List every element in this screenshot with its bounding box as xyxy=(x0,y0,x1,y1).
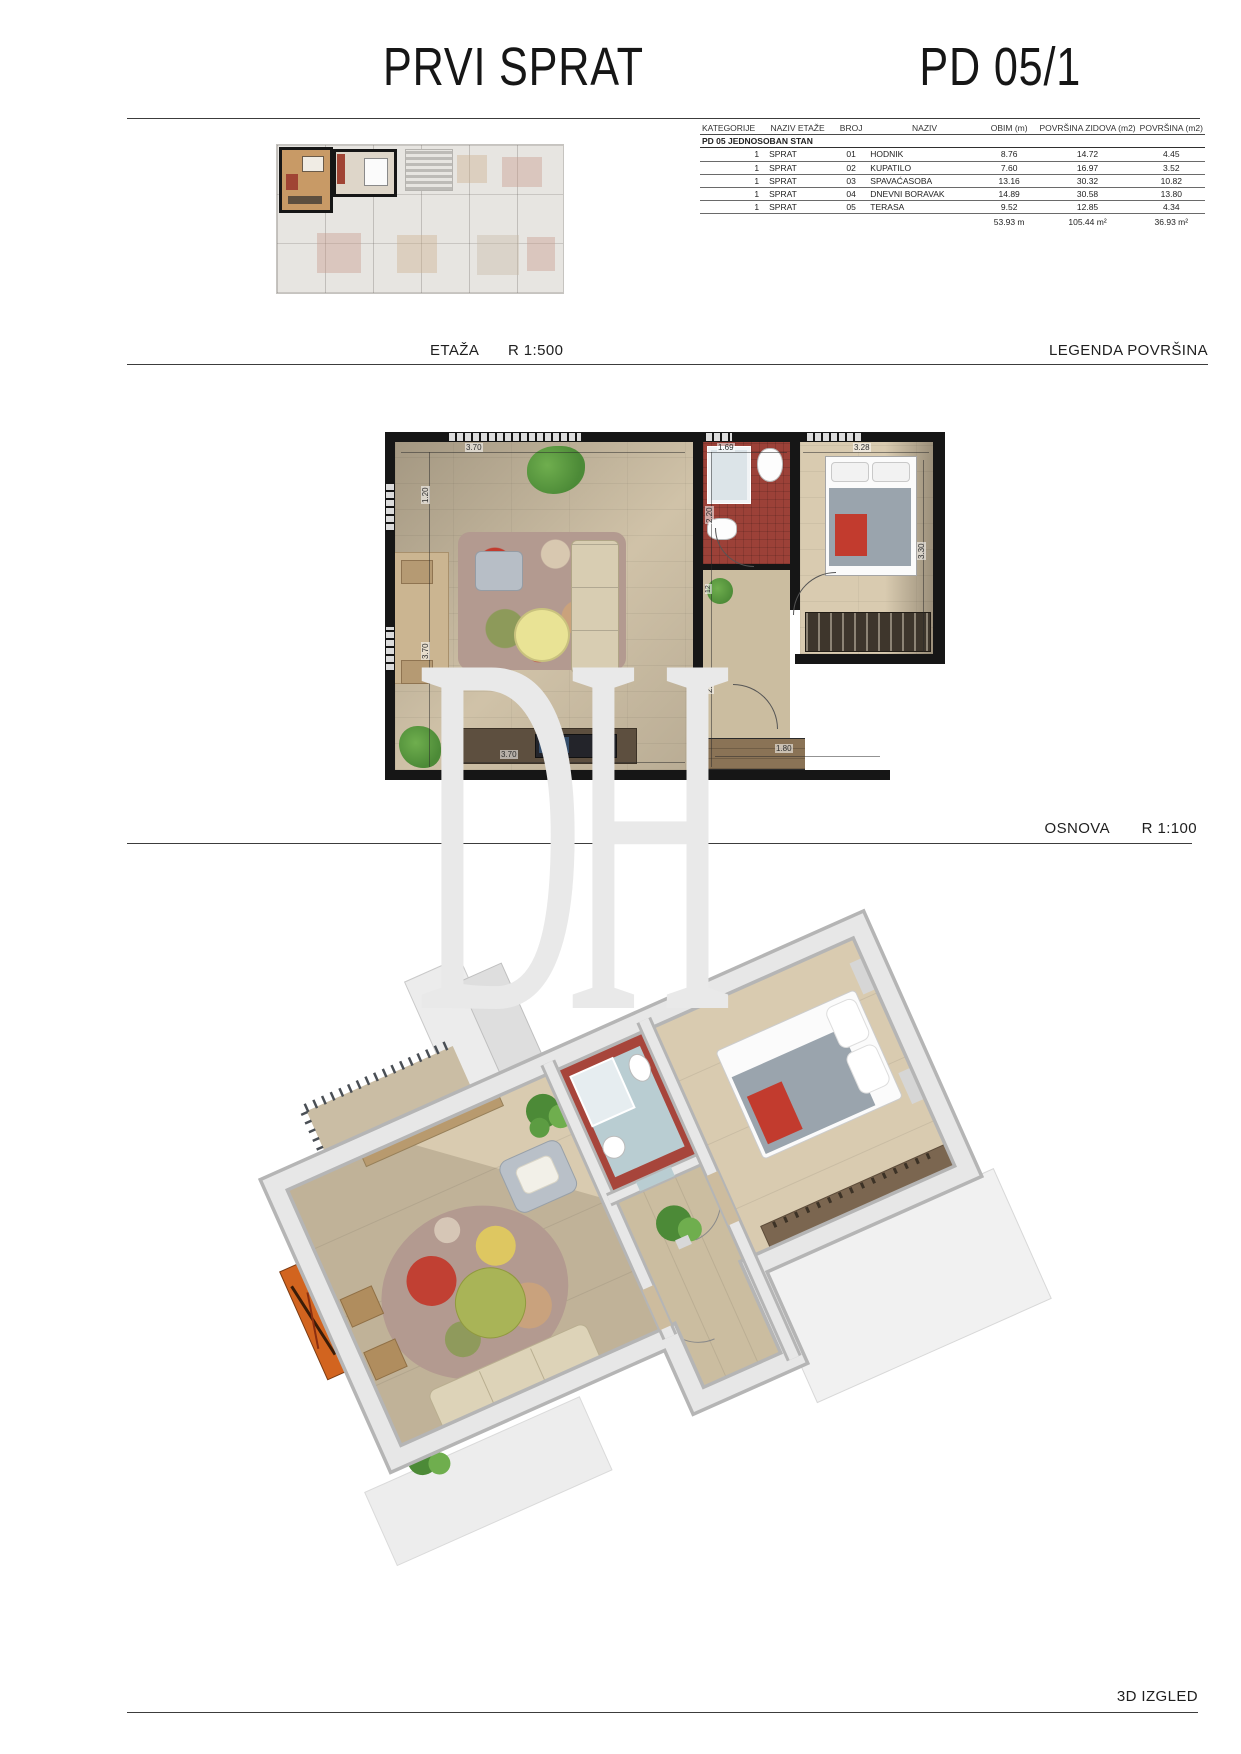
section-scale-osnova: R 1:100 xyxy=(1142,820,1197,837)
floor-plan: 3.70 1.69 3.28 1.20 3.70 2.20 12 2.78 3.… xyxy=(385,432,945,782)
cell-etaza: SPRAT xyxy=(761,201,834,214)
sofa xyxy=(571,540,619,674)
dim-label: 2.20 xyxy=(705,506,714,524)
cell-obim: 9.52 xyxy=(981,201,1038,214)
section-scale-etaza: R 1:500 xyxy=(508,342,563,359)
cell-povrsina: 4.34 xyxy=(1138,201,1205,214)
cell-obim: 13.16 xyxy=(981,174,1038,187)
legend-table: KATEGORIJE NAZIV ETAŽE BROJ NAZIV OBIM (… xyxy=(700,122,1205,229)
window-bedroom xyxy=(805,433,863,441)
col-header: NAZIV ETAŽE xyxy=(761,122,834,135)
col-header: NAZIV xyxy=(868,122,981,135)
cell-broj: 01 xyxy=(834,148,868,161)
dim-label: 2.78 xyxy=(705,676,714,694)
wall-bath-bedroom xyxy=(790,432,800,564)
cell-etaza: SPRAT xyxy=(761,161,834,174)
section-rule-etaza xyxy=(127,364,1208,365)
section-label-3d: 3D IZGLED xyxy=(1117,1688,1198,1705)
cell-povrsina: 4.45 xyxy=(1138,148,1205,161)
cell-etaza: SPRAT xyxy=(761,174,834,187)
window-bath xyxy=(704,433,732,441)
cell-zidovi: 14.72 xyxy=(1037,148,1137,161)
dim-label: 1.20 xyxy=(421,486,430,504)
cell-zidovi: 16.97 xyxy=(1037,161,1137,174)
stairwell xyxy=(405,149,453,191)
bed-pillow xyxy=(872,462,910,482)
total-povrsina: 36.93 m² xyxy=(1138,214,1205,229)
cell-naziv: DNEVNI BORAVAK xyxy=(868,187,981,200)
cell-broj: 03 xyxy=(834,174,868,187)
armchair xyxy=(475,551,523,591)
cell-obim: 14.89 xyxy=(981,187,1038,200)
cell-etaza: SPRAT xyxy=(761,187,834,200)
sheet: PRVI SPRAT PD 05/1 KATEGORIJE NAZIV ETAŽ… xyxy=(0,0,1241,1754)
table-row: 1 SPRAT 05 TERASA 9.52 12.85 4.34 xyxy=(700,201,1205,214)
cell-kategorije: 1 xyxy=(700,148,761,161)
col-header: KATEGORIJE xyxy=(700,122,761,135)
table-row: 1 SPRAT 02 KUPATILO 7.60 16.97 3.52 xyxy=(700,161,1205,174)
coffee-table xyxy=(514,608,570,662)
highlighted-unit-bedroom xyxy=(333,149,397,197)
section-label-etaza: ETAŽA xyxy=(430,342,479,359)
wall-living-divider xyxy=(693,432,703,780)
wall-right xyxy=(933,432,945,664)
cell-naziv: TERASA xyxy=(868,201,981,214)
cell-broj: 04 xyxy=(834,187,868,200)
total-obim: 53.93 m xyxy=(981,214,1038,229)
cell-povrsina: 13.80 xyxy=(1138,187,1205,200)
cell-etaza: SPRAT xyxy=(761,148,834,161)
cell-obim: 8.76 xyxy=(981,148,1038,161)
section-label-legenda: LEGENDA POVRŠINA xyxy=(1049,342,1208,359)
col-header: POVRŠINA ZIDOVA (m2) xyxy=(1037,122,1137,135)
header-rule xyxy=(127,118,1200,119)
wall-bedroom-bottom xyxy=(795,654,945,664)
dim-label: 3.30 xyxy=(917,542,926,560)
dim-label: 1.80 xyxy=(775,744,793,753)
table-row: 1 SPRAT 01 HODNIK 8.76 14.72 4.45 xyxy=(700,148,1205,161)
cell-kategorije: 1 xyxy=(700,201,761,214)
col-header: OBIM (m) xyxy=(981,122,1038,135)
wall-bottom xyxy=(385,770,890,780)
dim-label: 1.69 xyxy=(717,443,735,452)
dim-label: 3.70 xyxy=(465,443,483,452)
toilet xyxy=(757,448,783,482)
cell-zidovi: 12.85 xyxy=(1037,201,1137,214)
cell-naziv: HODNIK xyxy=(868,148,981,161)
dim-label: 3.70 xyxy=(421,642,430,660)
highlighted-unit-living xyxy=(279,147,333,213)
door-balcony-left xyxy=(386,627,394,672)
exterior-cutout xyxy=(805,668,945,770)
tv-glow xyxy=(539,737,569,753)
cell-broj: 05 xyxy=(834,201,868,214)
cell-naziv: SPAVAĆASOBA xyxy=(868,174,981,187)
cell-povrsina: 3.52 xyxy=(1138,161,1205,174)
cell-kategorije: 1 xyxy=(700,161,761,174)
table-totals-row: 53.93 m 105.44 m² 36.93 m² xyxy=(700,214,1205,229)
section-rule-osnova xyxy=(127,843,1192,844)
cell-zidovi: 30.58 xyxy=(1037,187,1137,200)
cell-naziv: KUPATILO xyxy=(868,161,981,174)
window-living-left xyxy=(386,482,394,532)
section-rule-3d xyxy=(127,1712,1198,1713)
shower xyxy=(707,446,751,504)
cell-broj: 02 xyxy=(834,161,868,174)
cell-zidovi: 30.32 xyxy=(1037,174,1137,187)
total-zidovi: 105.44 m² xyxy=(1037,214,1137,229)
table-row: 1 SPRAT 03 SPAVAĆASOBA 13.16 30.32 10.82 xyxy=(700,174,1205,187)
wardrobe xyxy=(805,612,931,652)
dim-label: 3.28 xyxy=(853,443,871,452)
col-header: POVRŠINA (m2) xyxy=(1138,122,1205,135)
bed-pillow xyxy=(831,462,869,482)
etaza-overview xyxy=(250,130,570,300)
window-living xyxy=(447,433,581,441)
dim-label: 3.70 xyxy=(500,750,518,759)
cell-obim: 7.60 xyxy=(981,161,1038,174)
sheet-code: PD 05/1 xyxy=(919,36,1081,98)
3d-view xyxy=(138,900,1103,1590)
group-label: PD 05 JEDNOSOBAN STAN xyxy=(700,135,1205,148)
section-label-osnova: OSNOVA xyxy=(1045,820,1110,837)
cell-kategorije: 1 xyxy=(700,174,761,187)
table-header-row: KATEGORIJE NAZIV ETAŽE BROJ NAZIV OBIM (… xyxy=(700,122,1205,135)
bed-red-throw xyxy=(835,514,867,556)
table-row: 1 SPRAT 04 DNEVNI BORAVAK 14.89 30.58 13… xyxy=(700,187,1205,200)
dim-label: 12 xyxy=(705,584,712,594)
cell-kategorije: 1 xyxy=(700,187,761,200)
table-group-row: PD 05 JEDNOSOBAN STAN xyxy=(700,135,1205,148)
cell-povrsina: 10.82 xyxy=(1138,174,1205,187)
col-header: BROJ xyxy=(834,122,868,135)
building-outline xyxy=(276,144,564,294)
page-title: PRVI SPRAT xyxy=(383,36,644,98)
